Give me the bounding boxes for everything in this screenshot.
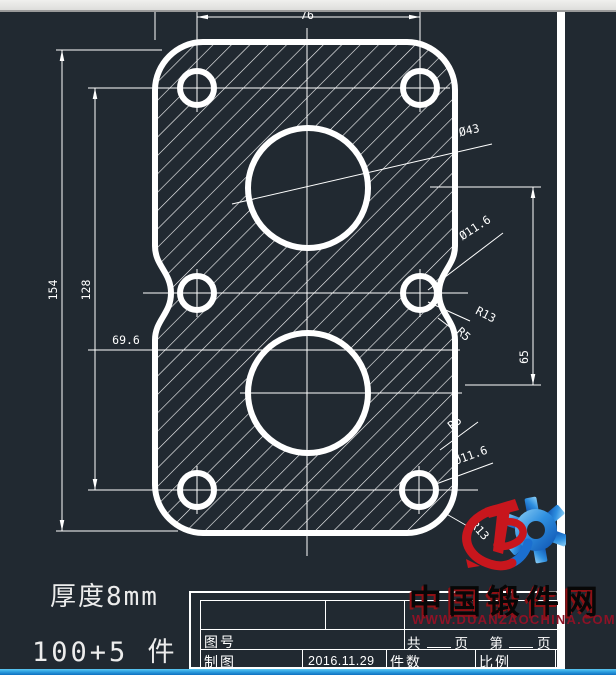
- dim-offset-left: 69.6: [112, 333, 140, 347]
- blank-line: [427, 634, 451, 648]
- label-pages-page2: 页: [537, 636, 553, 651]
- label-side-hole-dia: Ø11.6: [456, 212, 493, 243]
- pages-row: 共页 第页: [407, 632, 553, 652]
- value-date: 2016.11.29: [308, 654, 375, 668]
- plate-outline: [155, 42, 455, 533]
- label-drawing-no: 图号: [204, 632, 236, 652]
- site-logo: [458, 496, 566, 574]
- note-quantity: 100+5 件: [32, 630, 178, 669]
- window-top-bar: [0, 0, 616, 12]
- note-thickness: 厚度8mm: [50, 576, 159, 613]
- dim-circle-spacing: 65: [517, 350, 531, 364]
- label-side-corner-radius: R13: [473, 303, 498, 325]
- dim-hole-span: 128: [79, 280, 93, 301]
- label-pages-page: 页: [455, 636, 471, 651]
- label-pages-no: 第: [490, 636, 506, 651]
- taskbar-strip[interactable]: [0, 669, 616, 675]
- dim-overall-height: 154: [46, 280, 60, 301]
- cad-window: 76 154 128 69.6 65 Ø43 Ø11.6 R13 R5 R5 Ø…: [0, 0, 616, 675]
- label-pages-total: 共: [407, 636, 423, 651]
- label-big-circle-dia: Ø43: [457, 121, 480, 139]
- blank-line: [509, 634, 533, 648]
- watermark-site-url: WWW.DUANZAOCHINA.COM: [412, 612, 616, 627]
